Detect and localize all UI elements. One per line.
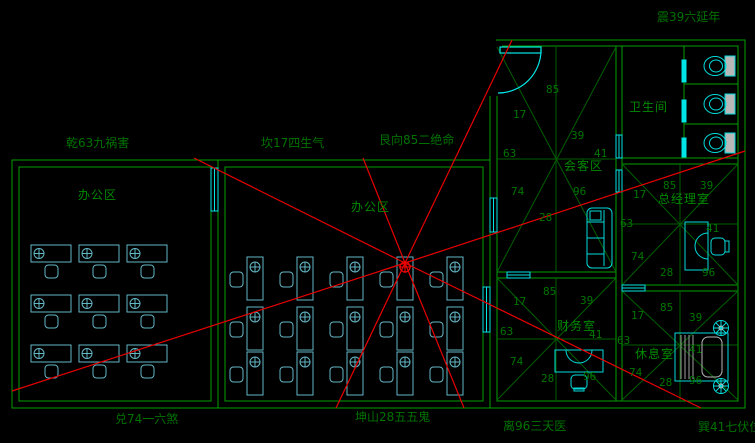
desk-workstation [430, 307, 463, 350]
sector-star-gm-office [622, 164, 738, 285]
compass-label-sw: 兑74一六煞 [115, 413, 178, 425]
sector-number: 28 [539, 212, 552, 223]
compass-label-se: 巽41七伏位 [698, 421, 755, 433]
sector-number: 28 [541, 373, 554, 384]
window [507, 272, 530, 278]
desk-workstation [280, 307, 313, 350]
window [616, 135, 622, 158]
compass-label-nw: 乾63九祸害 [66, 137, 129, 149]
sector-number: 96 [702, 267, 715, 278]
room-label-gm-office: 总经理室 [658, 193, 710, 205]
desk-workstation [79, 245, 119, 278]
room-label-office-left: 办公区 [78, 189, 117, 201]
desk-workstation [127, 345, 167, 378]
desk-workstation [127, 295, 167, 328]
office-left-workstations[interactable] [31, 245, 167, 378]
desk-workstation [330, 307, 363, 350]
sector-number: 17 [513, 296, 526, 307]
sector-number: 85 [546, 84, 559, 95]
desk-workstation [230, 257, 263, 300]
windows[interactable] [211, 60, 686, 332]
desk-workstation [127, 245, 167, 278]
sector-number: 96 [573, 186, 586, 197]
desk-workstation [330, 352, 363, 395]
compass-label-s2: 离96三天医 [503, 420, 566, 432]
sector-number: 17 [513, 109, 526, 120]
sector-number: 63 [503, 148, 516, 159]
sector-number: 63 [620, 218, 633, 229]
sector-number: 85 [660, 302, 673, 313]
window [211, 168, 218, 211]
sector-number: 17 [633, 189, 646, 200]
room-label-bathroom: 卫生间 [629, 101, 668, 113]
toilet-fixture [704, 56, 735, 76]
desk-workstation [31, 245, 71, 278]
toilets[interactable] [704, 56, 735, 153]
toilet-fixture [704, 94, 735, 114]
compass-label-n1: 坎17四生气 [261, 137, 324, 149]
compass-label-n2: 艮向85二绝命 [379, 134, 454, 146]
sector-number: 85 [663, 180, 676, 191]
desk-workstation [79, 295, 119, 328]
sector-number: 39 [700, 180, 713, 191]
sector-number: 96 [583, 371, 596, 382]
sector-number: 74 [631, 251, 644, 262]
plant-ornament[interactable] [714, 379, 729, 394]
meeting-sofa[interactable] [587, 208, 612, 268]
sector-number: 28 [660, 267, 673, 278]
room-label-office-mid: 办公区 [351, 201, 390, 213]
window [490, 198, 497, 232]
window [616, 170, 622, 192]
sector-number: 96 [689, 375, 702, 386]
sector-number: 74 [511, 186, 524, 197]
sector-number: 74 [629, 367, 642, 378]
room-label-meeting: 会客区 [564, 160, 603, 172]
cad-canvas[interactable]: 乾63九祸害 坎17四生气 艮向85二绝命 震39六延年 兑74一六煞 坤山28… [0, 0, 755, 443]
window [483, 287, 490, 332]
sector-number: 39 [571, 130, 584, 141]
desk-workstation [430, 257, 463, 300]
stall-door [682, 100, 686, 122]
desk-workstation [280, 257, 313, 300]
room-label-rest: 休息室 [635, 348, 674, 360]
entrance-door[interactable] [498, 47, 541, 93]
plant-ornament[interactable] [714, 321, 729, 336]
compass-label-s1: 坤山28五五鬼 [355, 411, 430, 423]
compass-label-ne: 震39六延年 [657, 11, 720, 23]
desk-workstation [31, 295, 71, 328]
sector-number: 39 [689, 312, 702, 323]
sector-number: 63 [500, 326, 513, 337]
sector-number: 41 [589, 329, 602, 340]
desk-workstation [280, 352, 313, 395]
sector-number: 85 [543, 286, 556, 297]
window [622, 285, 645, 291]
sector-number: 41 [706, 223, 719, 234]
stall-door [682, 60, 686, 82]
desk-workstation [230, 307, 263, 350]
sector-number: 63 [617, 335, 630, 346]
desk-workstation [380, 352, 413, 395]
sector-number: 41 [689, 344, 702, 355]
desk-workstation [31, 345, 71, 378]
office-mid-workstations[interactable] [230, 257, 463, 395]
desk-workstation [79, 345, 119, 378]
sector-number: 74 [510, 356, 523, 367]
sector-number: 41 [594, 148, 607, 159]
toilet-fixture [704, 133, 735, 153]
sector-number: 17 [631, 310, 644, 321]
desk-workstation [380, 307, 413, 350]
sector-number: 28 [659, 377, 672, 388]
desk-workstation [430, 352, 463, 395]
desk-workstation [230, 352, 263, 395]
sector-number: 39 [580, 295, 593, 306]
stall-door [682, 138, 686, 157]
